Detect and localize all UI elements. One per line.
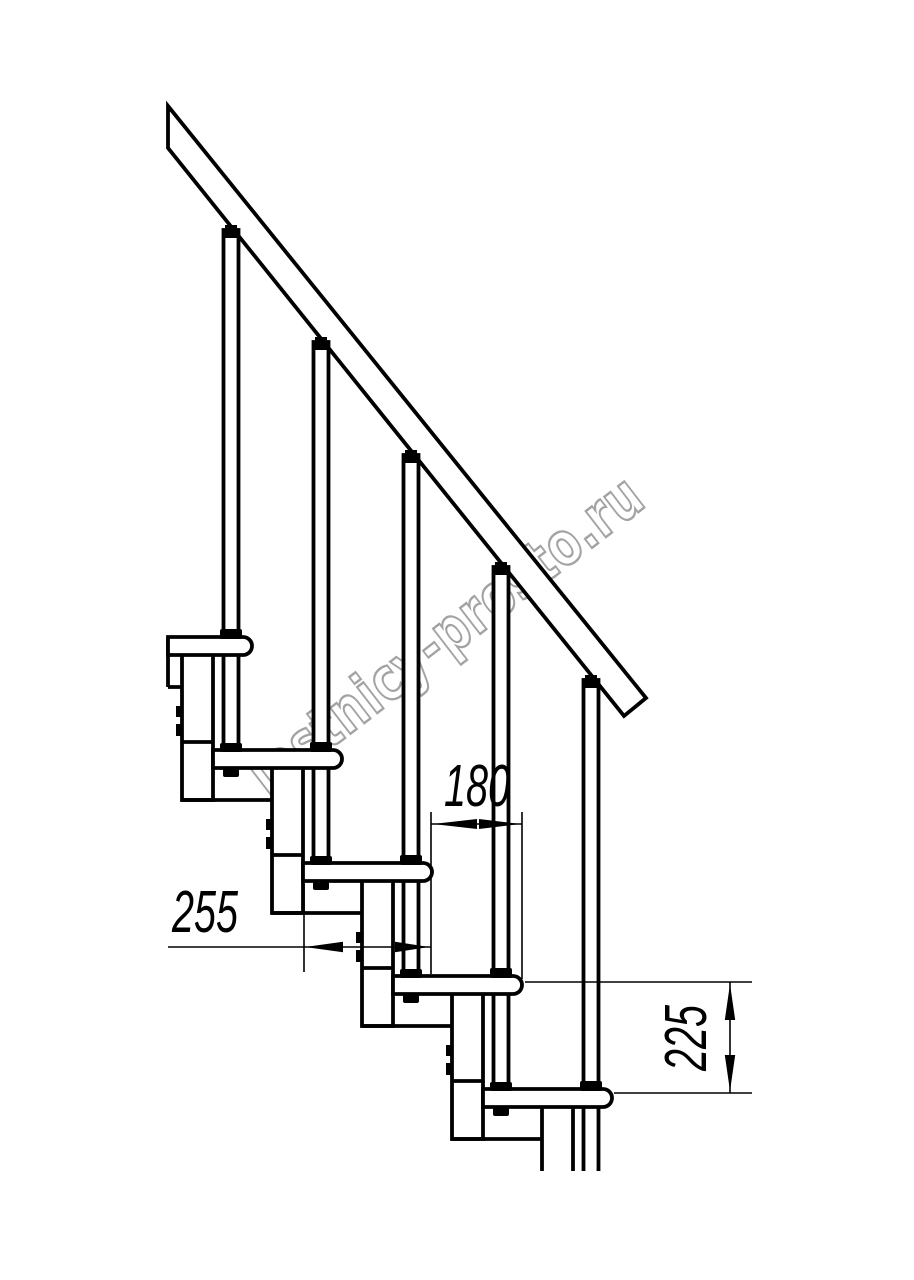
post-base-collar (400, 969, 422, 978)
baluster-top-collar (585, 675, 597, 688)
post-base-collar (310, 856, 332, 865)
baluster-top-collar (315, 337, 327, 350)
module-box-1 (182, 653, 213, 800)
support-post-2 (314, 764, 329, 865)
dimension-label-225: 225 (653, 1005, 719, 1072)
module-bolt (266, 837, 273, 849)
dimension-label-255: 255 (171, 879, 238, 945)
baluster-base-collar (400, 855, 422, 865)
module-box-4 (452, 992, 483, 1139)
support-post-3 (404, 877, 419, 978)
module-bolt (176, 706, 183, 717)
baluster-top-collar (495, 562, 507, 575)
module-bolt (356, 950, 363, 962)
baluster-base-collar (220, 629, 242, 639)
support-post-1 (224, 651, 239, 752)
under-tread-nut (313, 881, 329, 890)
baluster-top-collar (225, 225, 237, 238)
baluster-1 (224, 230, 239, 639)
tread-3 (303, 863, 432, 881)
post-base-collar (490, 1082, 512, 1091)
tread-1 (168, 637, 252, 655)
module-box-3 (362, 879, 393, 1026)
dimension-label-180: 180 (444, 753, 510, 819)
under-tread-nut (223, 768, 239, 777)
baluster-base-collar (490, 968, 512, 978)
post-base-collar (220, 743, 242, 752)
baluster-base-collar (580, 1081, 602, 1091)
module-bolt (356, 932, 363, 943)
tread-2 (213, 750, 342, 768)
module-box-2 (272, 766, 303, 913)
under-tread-nut (493, 1107, 509, 1116)
tread-5 (483, 1089, 612, 1107)
module-bolt (446, 1063, 453, 1075)
baluster-base-collar (310, 742, 332, 752)
module-bolt (266, 819, 273, 830)
baluster-5 (584, 680, 599, 1091)
module-bolt (176, 724, 183, 736)
module-bolt (446, 1045, 453, 1056)
baluster-3 (404, 455, 419, 865)
baluster-2 (314, 342, 329, 752)
technical-drawing-page: lestnicy-prosto.ru (0, 0, 914, 1280)
baluster-top-collar (405, 450, 417, 463)
support-post-4 (494, 990, 509, 1091)
tread-4 (393, 976, 522, 994)
under-tread-nut (403, 994, 419, 1003)
